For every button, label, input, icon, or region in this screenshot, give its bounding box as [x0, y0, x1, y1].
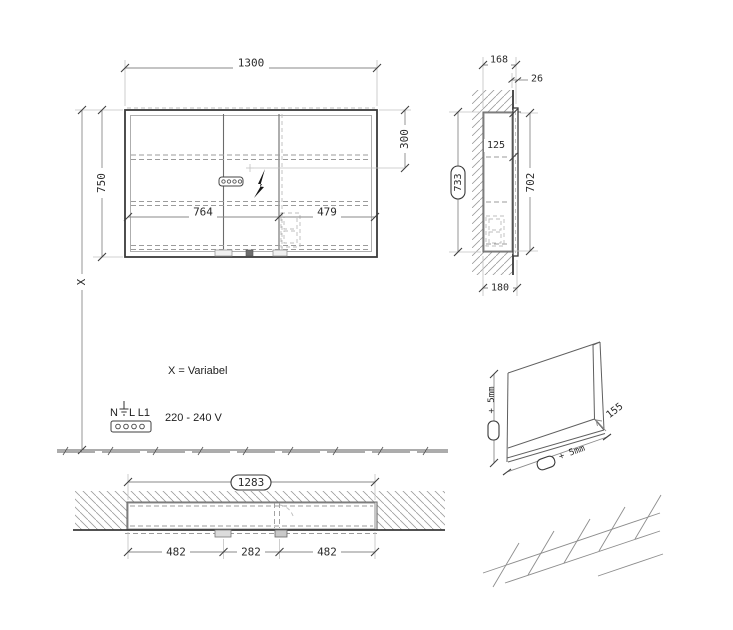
- niche-3d-view: 155 + 5mm + 5mm: [487, 342, 626, 475]
- dim-depth-total: 168: [490, 55, 508, 66]
- door-guide-blocks: [215, 250, 287, 256]
- dim-width: 1300: [238, 57, 265, 70]
- height-tolerance-dim: + 5mm: [487, 370, 499, 467]
- dim-left-section-plan: 482: [166, 546, 186, 559]
- dim-right-section: 479: [317, 206, 337, 219]
- dim-right-section-plan: 482: [317, 546, 337, 559]
- feed-point-leader: [246, 164, 404, 172]
- dim-middle-section-plan: 282: [241, 546, 261, 559]
- door-guide-block: [215, 530, 231, 537]
- dim-niche-height: 733: [453, 173, 464, 191]
- dim-bottom-depth: 180: [491, 283, 509, 294]
- mounting-reference-line: [57, 447, 448, 455]
- lightning-bolt-icon: [254, 169, 265, 198]
- cabinet-body-section: [484, 113, 512, 251]
- door-guide-block: [275, 530, 287, 537]
- cabinet-plan-body: [128, 503, 375, 529]
- shelf-dashed-lines: [131, 155, 371, 250]
- dim-niche-width: 1283: [238, 476, 265, 489]
- drawing-svg: 1300 750 X 764 479 300: [0, 0, 733, 630]
- power-socket-icon: [219, 177, 243, 186]
- floor-tiles: [483, 495, 663, 587]
- dim-protrusion: 26: [531, 74, 543, 85]
- cabinet-outline: [125, 110, 377, 257]
- dim-niche-depth: 155: [604, 401, 625, 421]
- cabinet-inner-frame: [131, 116, 372, 252]
- terminal-block-icon: [111, 421, 151, 432]
- ground-symbol-icon: [120, 401, 129, 415]
- dim-variable-height: X: [75, 278, 88, 285]
- bottom-view: [73, 491, 445, 537]
- technical-drawing-canvas: 1300 750 X 764 479 300: [0, 0, 733, 630]
- electrical-legend: X = Variabel N L L1 220 - 240 V: [110, 365, 227, 432]
- dim-top-offset: 125: [487, 140, 505, 151]
- terminal-l-label: L L1: [129, 407, 150, 419]
- front-view: [125, 108, 404, 257]
- dim-body-height: 702: [524, 173, 537, 193]
- framed-dim-placeholder: [536, 455, 557, 471]
- hidden-socket-icon: [281, 213, 300, 247]
- voltage-label: 220 - 240 V: [165, 412, 223, 424]
- height-tolerance-label: + 5mm: [487, 386, 497, 413]
- framed-dim-placeholder: [488, 421, 499, 440]
- variable-note: X = Variabel: [168, 365, 227, 377]
- terminal-n-label: N: [110, 407, 118, 419]
- dim-left-section: 764: [193, 206, 213, 219]
- dim-socket-drop: 300: [398, 129, 411, 149]
- dim-height: 750: [95, 173, 108, 193]
